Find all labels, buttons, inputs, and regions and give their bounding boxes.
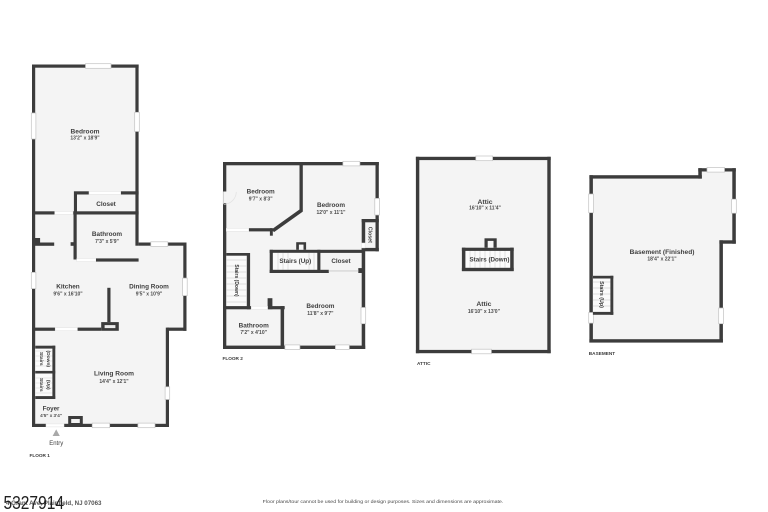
svg-text:9'6" x 16'10": 9'6" x 16'10" [53,292,83,298]
svg-text:13'2" x 18'9": 13'2" x 18'9" [70,136,100,142]
svg-text:Bedroom: Bedroom [317,202,345,209]
svg-text:BASEMENT: BASEMENT [589,351,615,356]
svg-text:11'8" x 9'7": 11'8" x 9'7" [307,311,334,317]
svg-text:9'5" x 10'9": 9'5" x 10'9" [136,292,163,298]
svg-text:9'7" x 8'3": 9'7" x 8'3" [249,197,273,203]
svg-text:Bedroom: Bedroom [306,303,334,310]
svg-text:(Up): (Up) [45,380,51,390]
svg-text:Bathroom: Bathroom [239,322,269,329]
svg-text:Stairs (Up): Stairs (Up) [598,281,604,308]
svg-text:7'3" x 5'9": 7'3" x 5'9" [95,239,119,245]
svg-text:FLOOR 1: FLOOR 1 [30,453,51,458]
svg-text:Bathroom: Bathroom [92,231,122,238]
svg-text:Stairs (Down): Stairs (Down) [470,256,510,263]
svg-text:Stairs: Stairs [38,378,44,392]
svg-text:FLOOR 2: FLOOR 2 [223,356,244,361]
svg-text:Attic: Attic [476,301,491,308]
svg-text:16'10" x 13'0": 16'10" x 13'0" [468,309,501,315]
svg-text:Dining Room: Dining Room [129,284,169,291]
svg-text:Foyer: Foyer [43,406,60,413]
svg-text:Closet: Closet [331,258,351,265]
svg-text:Entry: Entry [49,441,63,447]
svg-text:Floor plans/tour cannot be use: Floor plans/tour cannot be used for buil… [263,499,504,504]
svg-text:14'4" x 12'1": 14'4" x 12'1" [99,379,129,385]
svg-text:5327914: 5327914 [4,492,65,512]
svg-text:Stairs: Stairs [38,352,44,366]
svg-text:Basement (Finished): Basement (Finished) [630,249,695,256]
svg-text:Closet: Closet [367,227,373,243]
svg-text:Bedroom: Bedroom [71,128,100,135]
svg-text:(Down): (Down) [45,351,51,368]
svg-text:Kitchen: Kitchen [56,284,80,291]
svg-text:Living Room: Living Room [94,370,134,377]
svg-text:7'2" x 4'10": 7'2" x 4'10" [240,330,267,336]
svg-text:Closet: Closet [96,201,116,208]
svg-text:18'4" x 22'1": 18'4" x 22'1" [647,257,677,263]
svg-text:4'5" x 3'4": 4'5" x 3'4" [40,413,62,418]
svg-text:Stairs (Down): Stairs (Down) [233,264,239,297]
svg-text:Stairs (Up): Stairs (Up) [279,258,311,265]
svg-text:12'0" x 11'1": 12'0" x 11'1" [316,210,346,216]
svg-text:Bedroom: Bedroom [247,189,275,196]
svg-text:ATTIC: ATTIC [417,361,431,366]
svg-text:16'10" x 11'4": 16'10" x 11'4" [469,206,501,212]
